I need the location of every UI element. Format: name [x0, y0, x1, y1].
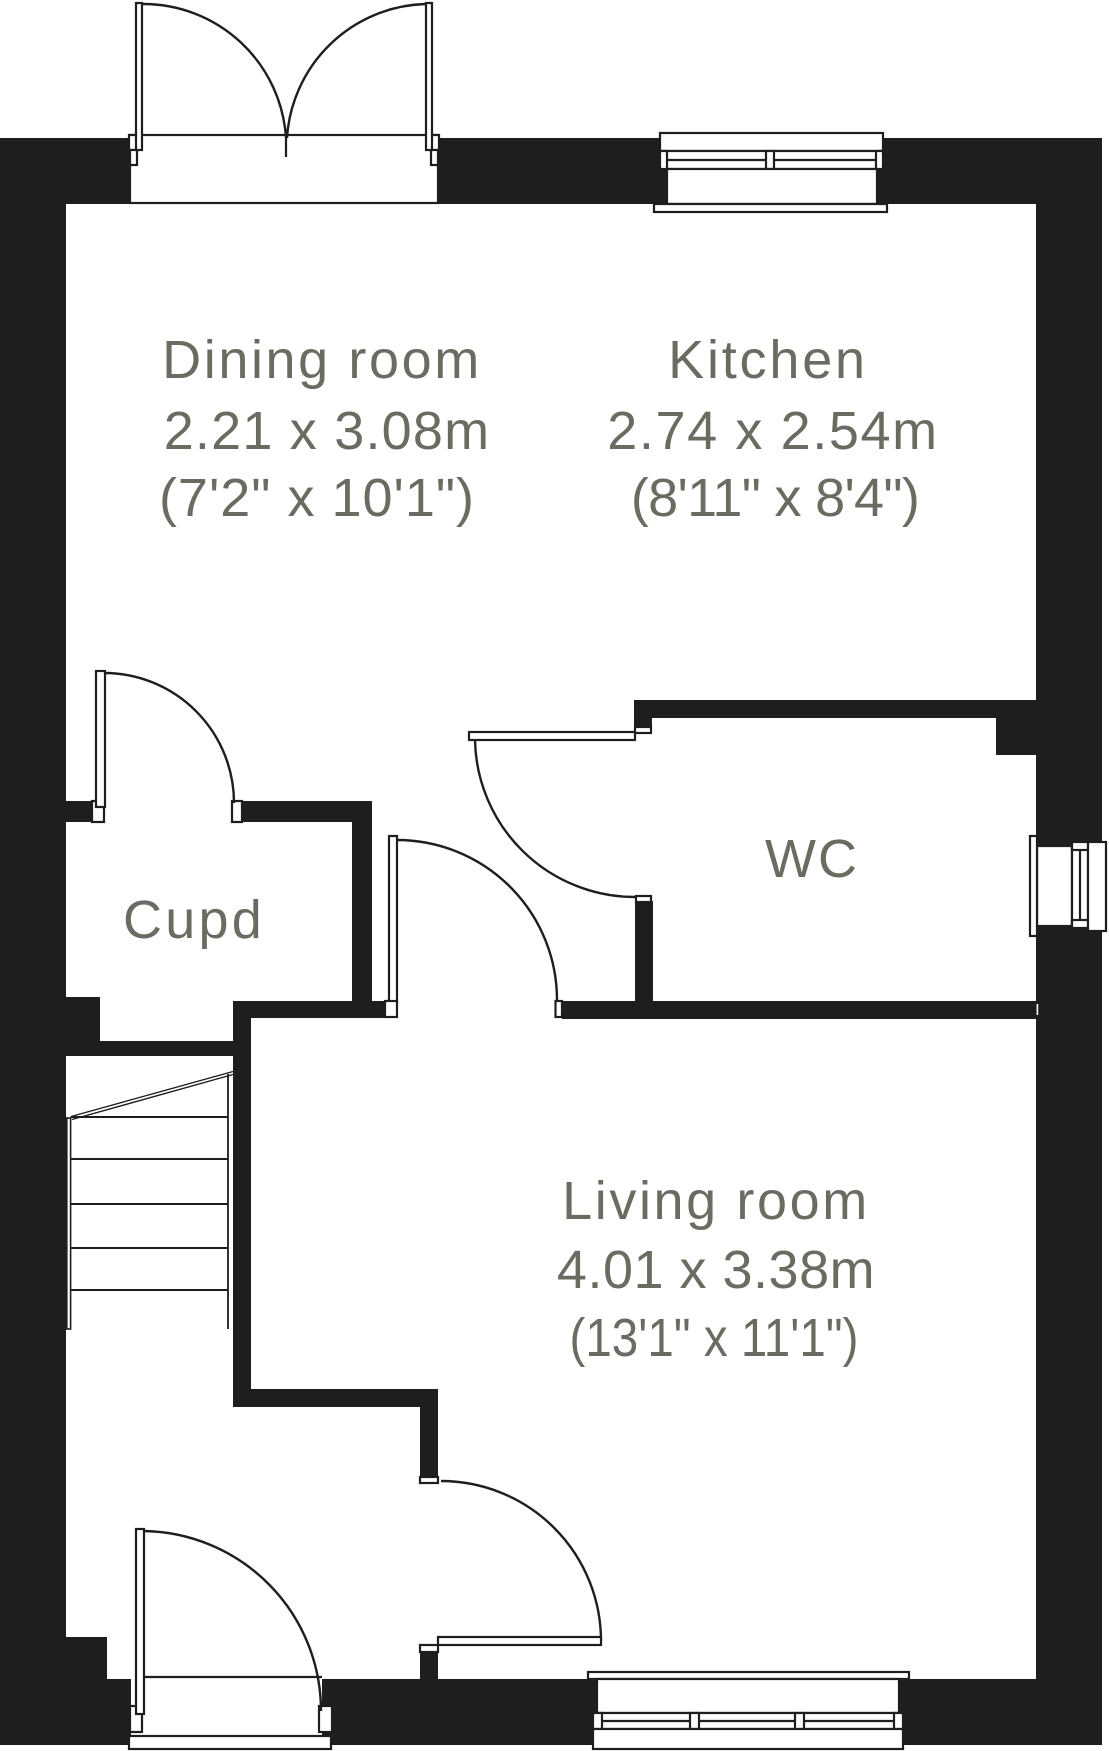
svg-text:2.74 x 2.54m: 2.74 x 2.54m — [607, 401, 938, 461]
svg-text:Dining room: Dining room — [162, 330, 482, 390]
svg-text:2.21 x 3.08m: 2.21 x 3.08m — [164, 401, 491, 461]
svg-text:(7'2" x 10'1"): (7'2" x 10'1") — [159, 468, 475, 528]
svg-text:Kitchen: Kitchen — [668, 330, 868, 390]
svg-text:WC: WC — [765, 829, 859, 889]
svg-text:4.01 x 3.38m: 4.01 x 3.38m — [557, 1240, 875, 1300]
svg-text:(8'11" x 8'4"): (8'11" x 8'4") — [631, 468, 919, 528]
svg-text:(13'1" x 11'1"): (13'1" x 11'1") — [570, 1308, 859, 1368]
svg-text:Cupd: Cupd — [123, 890, 265, 950]
svg-text:Living room: Living room — [562, 1171, 870, 1231]
